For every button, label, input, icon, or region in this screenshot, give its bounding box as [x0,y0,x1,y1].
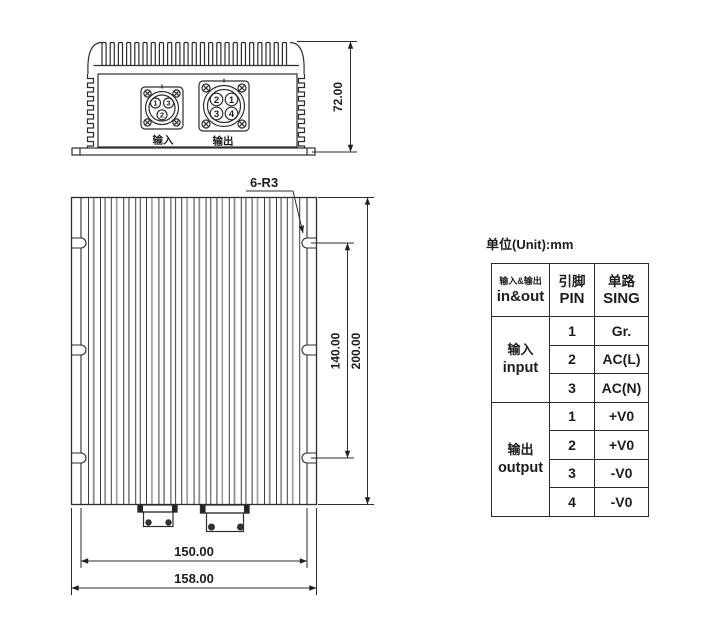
dim-label-200: 200.00 [349,332,363,369]
input-pin-1: 1 [153,99,157,108]
sing-cell: AC(N) [595,374,649,403]
table-row: 输出 output 1 +V0 [492,402,649,431]
pin-cell: 2 [550,345,595,374]
pin-cell: 1 [550,402,595,431]
header-pin-en: PIN [550,290,594,308]
front-right-corner [290,43,304,75]
front-left-corner [88,43,102,75]
output-pin-4: 4 [229,109,235,120]
pin-table: 输入&输出 in&out 引脚 PIN 单路 SING 输入 input 1 G… [491,263,649,517]
output-pin-1: 1 [229,95,235,106]
header-pin: 引脚 PIN [550,264,595,317]
notch-callout: 6-R3 [246,175,303,233]
notch-callout-label: 6-R3 [250,175,278,190]
pin-cell: 4 [550,488,595,517]
header-sing: 单路 SING [595,264,649,317]
pin-badge: 3 [164,98,174,108]
dim-width-150: 150.00 [81,508,307,568]
sing-cell: Gr. [595,317,649,346]
pin-cell: 1 [550,317,595,346]
dim-label-158: 158.00 [174,571,214,586]
output-pin-2: 2 [214,95,219,106]
sing-cell: AC(L) [595,345,649,374]
dim-height-72: 72.00 [297,42,357,153]
pin-badge: 1 [225,93,238,106]
left-side-fins [88,74,94,148]
header-sing-zh: 单路 [595,273,648,290]
pin-badge: 1 [151,98,161,108]
pin-cell: 3 [550,374,595,403]
header-inout-zh: 输入&输出 [492,275,549,288]
sing-cell: -V0 [595,488,649,517]
sing-cell: +V0 [595,431,649,460]
pin-badge: 3 [210,107,223,120]
bottom-connector-input [138,505,177,527]
input-connector-label: 输入 [153,134,174,147]
dimension-drawing-page: 1 3 2 2 1 [0,0,707,644]
output-connector: 2 1 3 4 [199,79,249,132]
right-side-fins [299,74,305,148]
sing-cell: +V0 [595,402,649,431]
pin-badge: 2 [210,93,223,106]
output-pin-3: 3 [214,109,219,120]
dim-hole-spacing-140: 140.00 [311,243,354,458]
bottom-connector-output [201,505,250,532]
pin-cell: 3 [550,459,595,488]
header-inout: 输入&输出 in&out [492,264,550,317]
header-sing-en: SING [595,290,648,308]
dim-label-72: 72.00 [331,82,345,112]
sing-cell: -V0 [595,459,649,488]
dim-label-140: 140.00 [329,332,343,369]
front-panel [98,74,297,147]
pin-cell: 2 [550,431,595,460]
front-view: 1 3 2 2 1 [72,43,315,156]
dim-label-150: 150.00 [174,544,214,559]
header-pin-zh: 引脚 [550,273,594,290]
group-label-input: 输入 input [492,317,550,403]
base-plate [72,148,315,155]
pin-badge: 4 [225,107,238,120]
input-pin-3: 3 [166,99,170,108]
heatsink-fins [89,198,300,504]
unit-note: 单位(Unit):mm [486,234,573,253]
table-row: 输入 input 1 Gr. [492,317,649,346]
group-label-output: 输出 output [492,402,550,516]
input-connector: 1 3 2 [141,85,183,130]
input-pin-2: 2 [160,110,164,119]
header-inout-en: in&out [492,288,549,306]
output-connector-label: 输出 [213,135,234,148]
top-fins [102,43,287,66]
top-view [72,198,317,532]
pin-badge: 2 [157,110,167,120]
